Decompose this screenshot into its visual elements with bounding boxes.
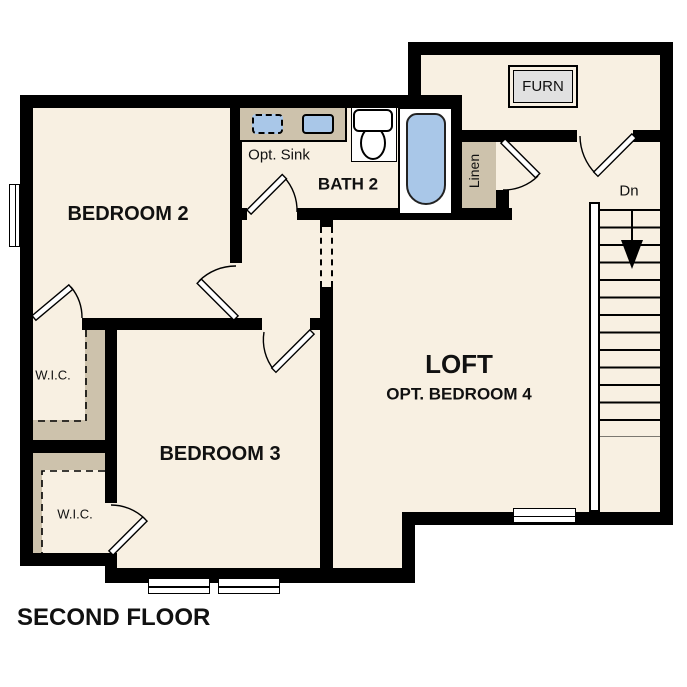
furnace-unit: FURN: [508, 65, 578, 108]
wall-wic-divider: [20, 440, 117, 453]
dashed-wall-opening: [320, 227, 333, 287]
window-bedroom3-left: [148, 578, 210, 594]
wic1-label: W.I.C.: [35, 369, 70, 382]
loft-sublabel: OPT. BEDROOM 4: [386, 386, 531, 403]
bathtub: [406, 113, 446, 205]
wall-bedroom3-left-a: [105, 330, 117, 503]
linen-label: Linen: [467, 154, 481, 188]
wall-linen-right-stub: [496, 190, 509, 210]
toilet-alcove: [351, 107, 397, 162]
loft-label: LOFT: [425, 351, 493, 377]
bedroom3-label: BEDROOM 3: [159, 444, 280, 464]
bath2-label: BATH 2: [318, 176, 378, 193]
wic2-label: W.I.C.: [57, 508, 92, 521]
wall-bedroom3-loft: [320, 330, 333, 583]
window-bedroom2: [9, 184, 20, 247]
plan-title: SECOND FLOOR: [17, 606, 210, 630]
wall-hall-upper: [320, 208, 333, 227]
stair-treads: [600, 209, 660, 437]
wall-top-right: [408, 42, 673, 55]
floor-plan-canvas: FURN: [0, 0, 687, 687]
optional-sink: [252, 114, 283, 134]
window-loft: [513, 508, 576, 523]
wall-left: [20, 95, 33, 566]
wic2-shelf-left: [33, 470, 42, 553]
wall-furnace-bottom-a: [455, 130, 577, 142]
floor-main: [33, 108, 660, 512]
window-divider: [149, 586, 209, 588]
sink: [302, 114, 334, 134]
stair-rail: [589, 202, 600, 512]
stairs-dn-label: Dn: [619, 184, 638, 199]
wic2-shelf-top: [33, 453, 105, 470]
opt-sink-label: Opt. Sink: [248, 148, 310, 163]
wall-hall-lower: [320, 287, 333, 330]
bedroom2-label: BEDROOM 2: [67, 204, 188, 224]
wic1-shelf-right: [85, 330, 105, 440]
window-bedroom3-right: [218, 578, 280, 594]
wic1-shelf-bottom: [33, 420, 88, 440]
window-divider: [514, 516, 575, 518]
wall-furnace-left: [408, 42, 421, 108]
wall-mid-horizontal-a: [82, 318, 262, 330]
wall-right: [660, 42, 673, 525]
wall-wic-bottom: [20, 553, 117, 566]
wall-furnace-bottom-b: [633, 130, 673, 142]
window-divider: [219, 586, 279, 588]
furnace-label: FURN: [513, 70, 573, 103]
wall-bedroom3-left-b: [105, 553, 117, 583]
window-divider: [15, 185, 17, 246]
floor-bedroom3-lower: [117, 512, 402, 568]
